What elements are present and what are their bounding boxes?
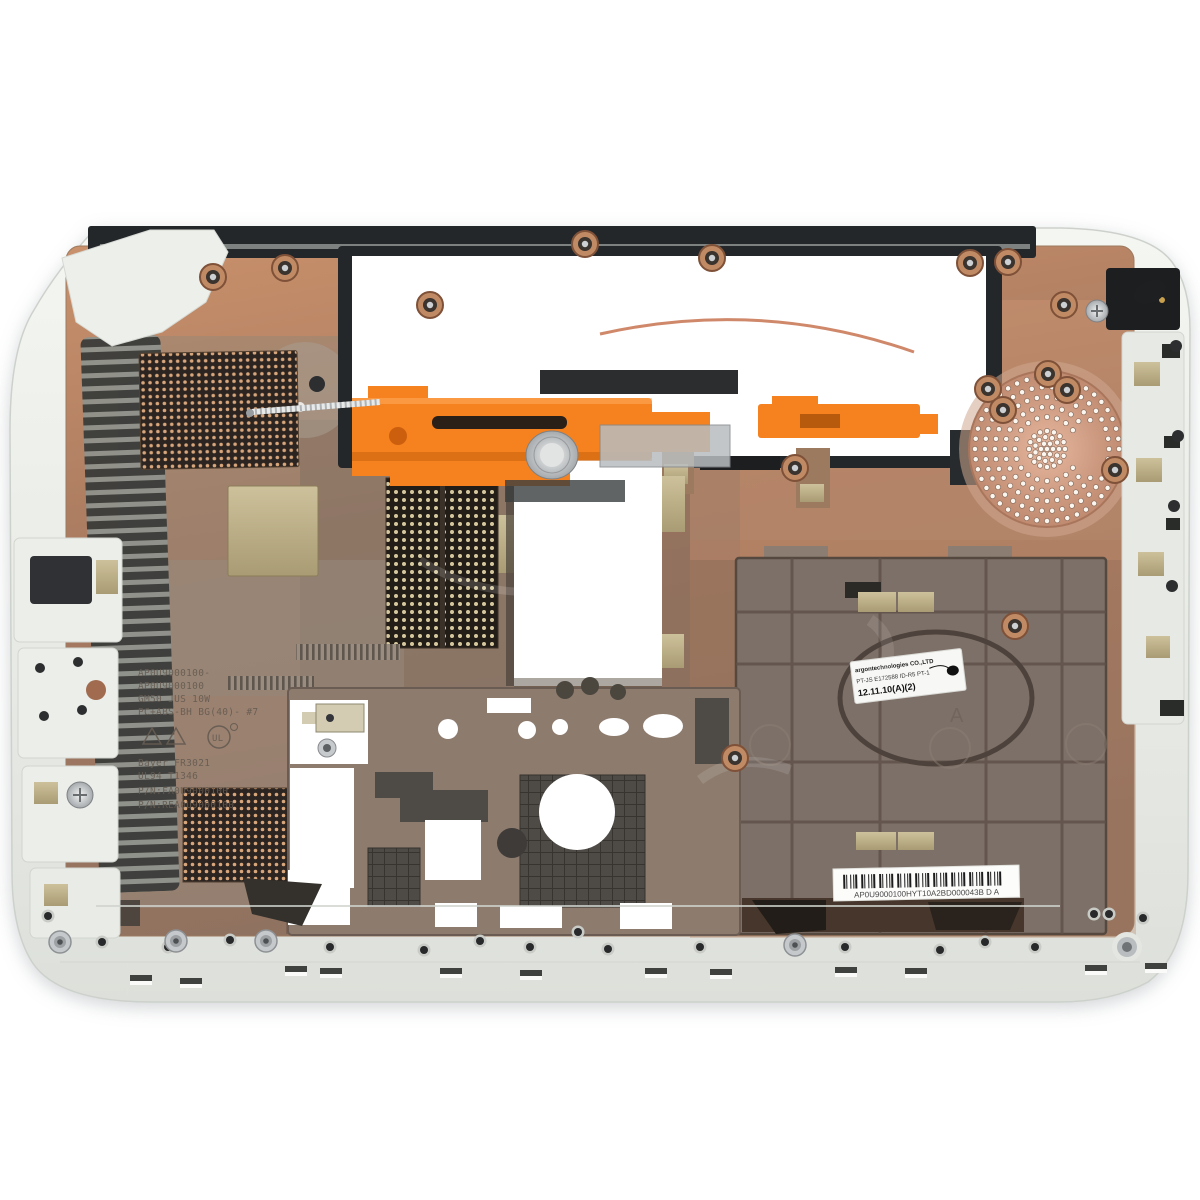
- speaker-hole: [1033, 443, 1038, 448]
- speaker-hole: [1110, 416, 1115, 421]
- speaker-hole: [1044, 464, 1049, 469]
- svg-text:AP0U9000100-: AP0U9000100-: [138, 668, 210, 679]
- speaker-hole: [1008, 483, 1013, 488]
- latch-slot: [835, 967, 857, 977]
- speaker-hole: [1014, 512, 1019, 517]
- screw-boss: [990, 397, 1016, 423]
- speaker-hole: [1099, 399, 1104, 404]
- speaker-hole: [1028, 453, 1033, 458]
- speaker-hole: [1051, 463, 1056, 468]
- speaker-hole: [990, 476, 995, 481]
- speaker-hole: [1049, 405, 1054, 410]
- latch-slot: [440, 968, 462, 978]
- tray-mold-mark: A: [950, 705, 964, 727]
- speaker-hole: [1049, 457, 1054, 462]
- speaker-hole: [1014, 456, 1019, 461]
- speaker-hole: [984, 407, 989, 412]
- speaker-hole: [1059, 486, 1064, 491]
- speaker-hole: [1037, 455, 1042, 460]
- speaker-hole: [1106, 446, 1111, 451]
- speaker-hole: [1054, 440, 1059, 445]
- latch-slot: [180, 978, 202, 988]
- screw-boss: [957, 250, 983, 276]
- speaker-hole: [1024, 377, 1029, 382]
- speaker-hole: [1044, 498, 1049, 503]
- speaker-hole: [1054, 477, 1059, 482]
- svg-text:GM50 JUS 10W: GM50 JUS 10W: [138, 694, 210, 705]
- svg-text:P/N:REA0U9000100: P/N:REA0U9000100: [138, 800, 234, 811]
- speaker-hole: [1004, 436, 1009, 441]
- screw-hole: [474, 935, 487, 948]
- speaker-hole: [1083, 386, 1088, 391]
- speaker-hole: [1068, 481, 1073, 486]
- speaker-hole: [1019, 465, 1024, 470]
- svg-text:P/N:FA0U9000100: P/N:FA0U9000100: [138, 786, 228, 797]
- speaker-hole: [1081, 483, 1086, 488]
- screw-boss: [272, 255, 298, 281]
- speaker-hole: [1039, 508, 1044, 513]
- screw-hole: [418, 944, 431, 957]
- speaker-hole: [1051, 430, 1056, 435]
- speaker-hole: [972, 446, 977, 451]
- speaker-hole: [1057, 434, 1062, 439]
- screw-hole: [572, 926, 585, 939]
- speaker-hole: [1002, 446, 1007, 451]
- speaker-hole: [1026, 421, 1031, 426]
- latch-slot: [645, 968, 667, 978]
- speaker-hole: [1039, 405, 1044, 410]
- screw-boss: [1102, 457, 1128, 483]
- speaker-hole: [1019, 390, 1024, 395]
- speaker-hole: [1093, 408, 1098, 413]
- speaker-hole: [1041, 452, 1046, 457]
- speaker-hole: [1113, 426, 1118, 431]
- screw-boss: [995, 249, 1021, 275]
- latch-slot: [905, 968, 927, 978]
- screw-hole: [839, 941, 852, 954]
- speaker-hole: [1070, 428, 1075, 433]
- speaker-hole: [979, 416, 984, 421]
- speaker-hole: [1037, 437, 1042, 442]
- speaker-hole: [1106, 436, 1111, 441]
- speaker-hole: [1025, 398, 1030, 403]
- screw-boss: [1002, 613, 1028, 639]
- rib-strip-1: [296, 644, 400, 660]
- speaker-hole: [1092, 501, 1097, 506]
- speaker-hole: [1083, 507, 1088, 512]
- speaker-hole: [1032, 459, 1037, 464]
- svg-text:Bayer FR3021: Bayer FR3021: [138, 758, 210, 769]
- speaker-hole: [1073, 490, 1078, 495]
- speaker-hole: [984, 485, 989, 490]
- screw-boss: [417, 292, 443, 318]
- screw-grommet: [165, 930, 187, 952]
- screw-hole: [324, 941, 337, 954]
- speaker-hole: [1034, 395, 1039, 400]
- screw-boss: [782, 455, 808, 481]
- speaker-hole: [996, 466, 1001, 471]
- screw-hole: [602, 943, 615, 956]
- screw-hole: [934, 944, 947, 957]
- speaker-hole: [1103, 426, 1108, 431]
- speaker-hole: [1047, 441, 1052, 446]
- speaker-hole: [1004, 456, 1009, 461]
- screw-hole: [224, 934, 237, 947]
- speaker-hole: [1050, 508, 1055, 513]
- speaker-hole: [1007, 427, 1012, 432]
- speaker-hole: [1074, 512, 1079, 517]
- speaker-hole: [1116, 436, 1121, 441]
- speaker-hole: [979, 476, 984, 481]
- photo-canvas: A AP0U9000100- AP0U9000100 GM50 JUS 10W …: [0, 0, 1200, 1200]
- speaker-hole: [973, 436, 978, 441]
- speaker-hole: [1086, 492, 1091, 497]
- phillips-screw: [1086, 300, 1108, 322]
- speaker-hole: [1105, 407, 1110, 412]
- speaker-hole: [975, 426, 980, 431]
- speaker-hole: [1029, 386, 1034, 391]
- speaker-hole: [1055, 497, 1060, 502]
- speaker-hole: [1061, 440, 1066, 445]
- speaker-hole: [1061, 453, 1066, 458]
- speaker-hole: [1028, 440, 1033, 445]
- latch-slot: [1085, 965, 1107, 975]
- svg-text:AP0U9000100: AP0U9000100: [138, 681, 204, 692]
- speaker-hole: [1092, 392, 1097, 397]
- speaker-hole: [1050, 446, 1055, 451]
- screw-hole: [42, 910, 55, 923]
- speaker-hole: [1038, 446, 1043, 451]
- screw-hole: [694, 941, 707, 954]
- hinge-bar: [540, 370, 738, 394]
- speaker-hole: [1099, 494, 1104, 499]
- speaker-hole: [1019, 503, 1024, 508]
- screw-hole: [96, 936, 109, 949]
- speaker-hole: [1019, 428, 1024, 433]
- speaker-hole: [1069, 503, 1074, 508]
- speaker-hole: [1065, 515, 1070, 520]
- corner-screw-boss: [1112, 932, 1142, 962]
- speaker-hole: [1034, 518, 1039, 523]
- speaker-hole: [1054, 453, 1059, 458]
- speaker-hole: [1030, 407, 1035, 412]
- screw-boss: [1051, 292, 1077, 318]
- speaker-hole: [1076, 474, 1081, 479]
- speaker-hole: [1044, 518, 1049, 523]
- screw-grommet: [49, 931, 71, 953]
- speaker-hole: [986, 426, 991, 431]
- speaker-hole: [1057, 459, 1062, 464]
- screw-boss: [699, 245, 725, 271]
- speaker-hole: [1063, 421, 1068, 426]
- speaker-hole: [1005, 507, 1010, 512]
- speaker-hole: [1081, 410, 1086, 415]
- speaker-hole: [1026, 472, 1031, 477]
- mid-structural-panel: [288, 677, 740, 935]
- speaker-hole: [1044, 394, 1049, 399]
- svg-text:PC+ABS-BH BG(40)- #7: PC+ABS-BH BG(40)- #7: [138, 707, 258, 718]
- speaker-hole: [1030, 486, 1035, 491]
- speaker-hole: [1026, 446, 1031, 451]
- screw-hole: [979, 936, 992, 949]
- speaker-hole: [1068, 412, 1073, 417]
- left-rim-ports: [14, 538, 122, 938]
- speaker-hole: [1064, 494, 1069, 499]
- screw-boss: [1054, 377, 1080, 403]
- speaker-hole: [1021, 412, 1026, 417]
- screw-grommet: [255, 930, 277, 952]
- speaker-hole: [1012, 446, 1017, 451]
- speaker-hole: [1073, 403, 1078, 408]
- screw-grommet: [784, 934, 806, 956]
- speaker-hole: [1014, 381, 1019, 386]
- speaker-hole: [1078, 498, 1083, 503]
- screw-hole: [1029, 941, 1042, 954]
- speaker-hole: [1035, 416, 1040, 421]
- speaker-hole: [1038, 430, 1043, 435]
- laptop-bottom-case-photo: A AP0U9000100- AP0U9000100 GM50 JUS 10W …: [0, 0, 1200, 1200]
- speaker-hole: [1007, 466, 1012, 471]
- svg-text:UL: UL: [212, 734, 223, 744]
- speaker-hole: [1010, 498, 1015, 503]
- speaker-hole: [1044, 428, 1049, 433]
- latch-slot: [710, 969, 732, 979]
- speaker-hole: [1034, 497, 1039, 502]
- speaker-hole: [1021, 481, 1026, 486]
- latch-slot: [130, 975, 152, 985]
- speaker-hole: [1099, 417, 1104, 422]
- screw-boss: [572, 231, 598, 257]
- screw-boss: [200, 264, 226, 290]
- right-rim-ports: [1122, 275, 1184, 724]
- speaker-hole: [1002, 492, 1007, 497]
- speaker-hole: [1054, 416, 1059, 421]
- latch-slot: [285, 966, 307, 976]
- speaker-hole: [997, 501, 1002, 506]
- speaker-hole: [1035, 477, 1040, 482]
- barcode-label: AP0U9000100HYT10A2BD000043B D A: [833, 865, 1020, 901]
- latch-slot: [520, 970, 542, 980]
- speaker-hole: [1049, 435, 1054, 440]
- speaker-hole: [983, 457, 988, 462]
- speaker-hole: [1059, 407, 1064, 412]
- speaker-hole: [1062, 446, 1067, 451]
- speaker-hole: [1005, 386, 1010, 391]
- speaker-hole: [1043, 435, 1048, 440]
- speaker-hole: [990, 494, 995, 499]
- speaker-hole: [1116, 446, 1121, 451]
- latch-slot: [320, 968, 342, 978]
- speaker-hole: [1055, 518, 1060, 523]
- speaker-hole: [1076, 419, 1081, 424]
- speaker-hole: [1025, 494, 1030, 499]
- speaker-hole: [1105, 485, 1110, 490]
- speaker-hole: [1033, 450, 1038, 455]
- speaker-hole: [986, 467, 991, 472]
- speaker-hole: [1049, 488, 1054, 493]
- speaker-hole: [1043, 458, 1048, 463]
- speaker-hole: [1047, 452, 1052, 457]
- speaker-hole: [993, 457, 998, 462]
- speaker-hole: [1029, 507, 1034, 512]
- screw-boss: [722, 745, 748, 771]
- screw-hole: [1103, 908, 1116, 921]
- speaker-hole: [1044, 414, 1049, 419]
- speaker-hole: [1016, 490, 1021, 495]
- speaker-hole: [975, 467, 980, 472]
- speaker-hole: [1038, 463, 1043, 468]
- speaker-hole: [996, 427, 1001, 432]
- screw-hole: [524, 941, 537, 954]
- speaker-hole: [983, 436, 988, 441]
- screw-hole: [1137, 912, 1150, 925]
- speaker-hole: [1093, 484, 1098, 489]
- speaker-hole: [1013, 474, 1018, 479]
- speaker-hole: [1001, 475, 1006, 480]
- speaker-hole: [1070, 465, 1075, 470]
- speaker-hole: [1063, 472, 1068, 477]
- speaker-hole: [1041, 441, 1046, 446]
- vent-mesh-cpu: [386, 478, 498, 648]
- speaker-hole: [1013, 419, 1018, 424]
- speaker-hole: [982, 446, 987, 451]
- screw-hole: [1088, 908, 1101, 921]
- speaker-hole: [1086, 401, 1091, 406]
- speaker-hole: [1024, 515, 1029, 520]
- speaker-hole: [1014, 437, 1019, 442]
- speaker-hole: [995, 484, 1000, 489]
- metal-bracket: [600, 425, 730, 467]
- speaker-hole: [993, 436, 998, 441]
- speaker-hole: [1088, 475, 1093, 480]
- speaker-hole: [1060, 507, 1065, 512]
- speaker-hole: [1044, 446, 1049, 451]
- speaker-hole: [973, 457, 978, 462]
- speaker-hole: [1039, 488, 1044, 493]
- panel-dark-boss: [497, 828, 527, 858]
- speaker-hole: [1044, 478, 1049, 483]
- speaker-hole: [992, 446, 997, 451]
- speaker-hole: [1088, 418, 1093, 423]
- svg-text:UL94 T1346: UL94 T1346: [138, 771, 198, 782]
- speaker-hole: [1056, 446, 1061, 451]
- speaker-hole: [1032, 434, 1037, 439]
- latch-slot: [1145, 963, 1167, 973]
